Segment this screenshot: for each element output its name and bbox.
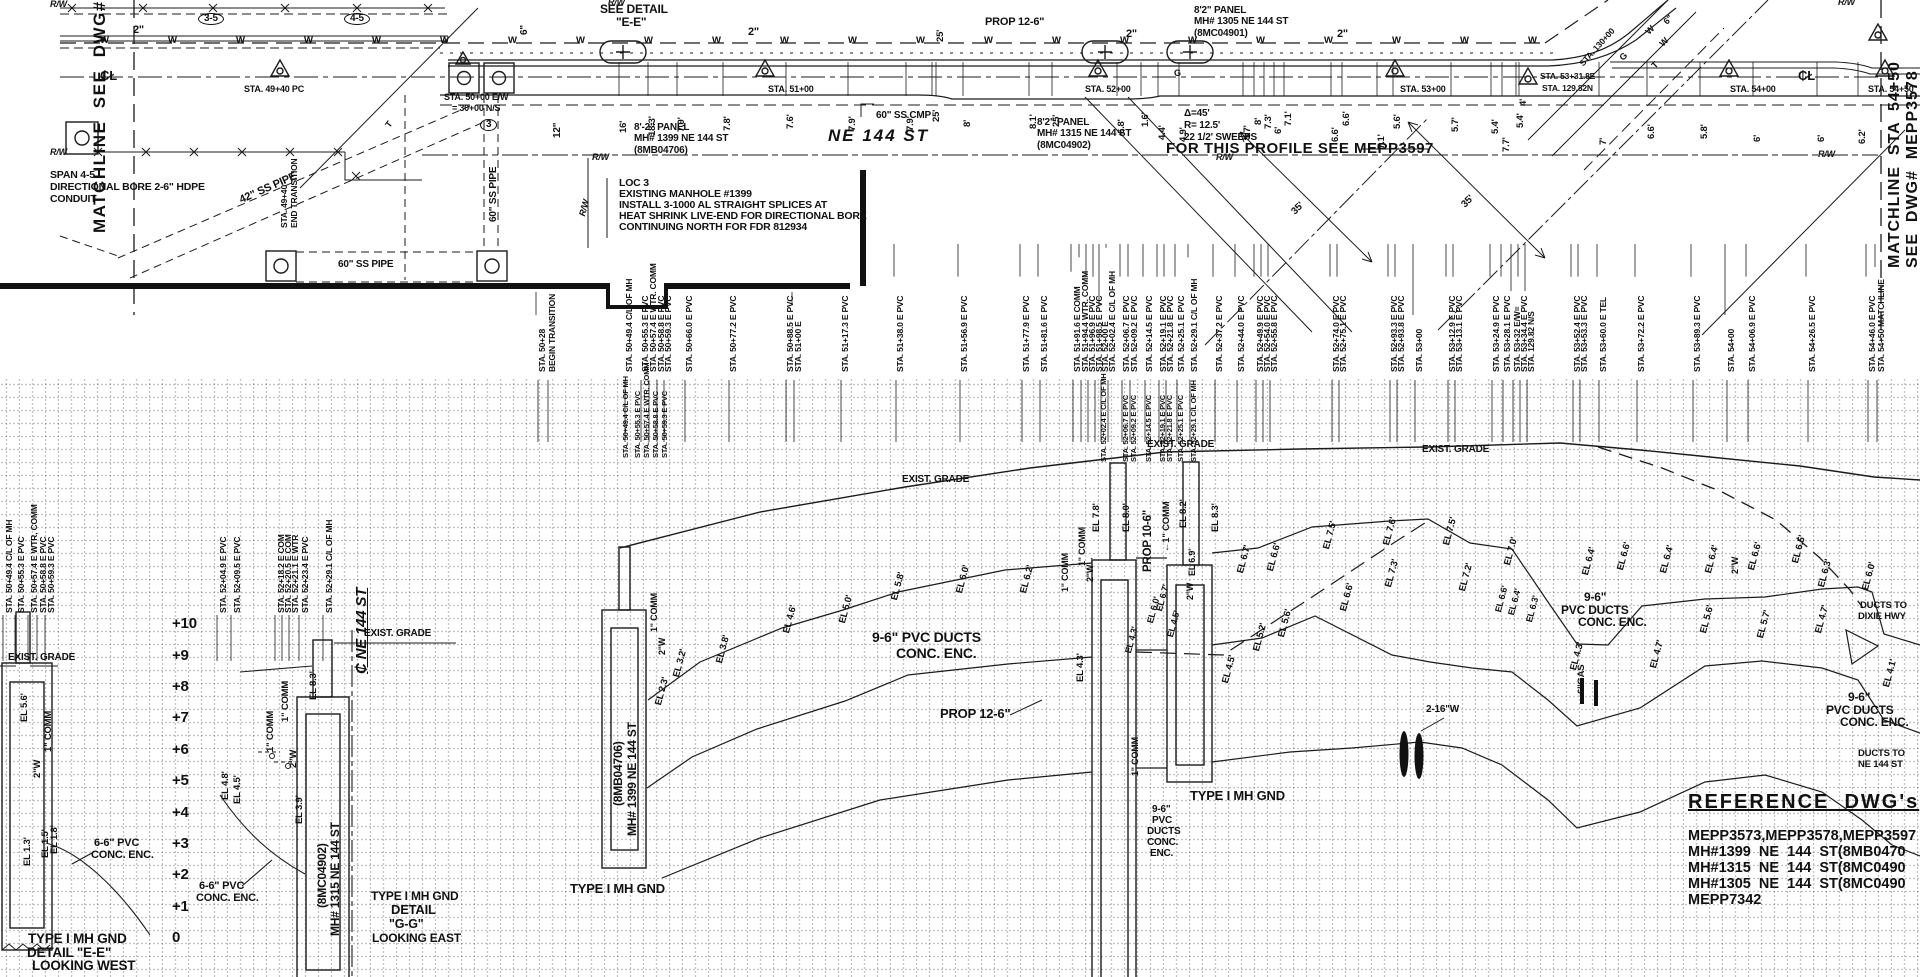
profile-station-callout: STA. 52+23.4 E PVC: [301, 537, 310, 613]
water-line-marker: W: [168, 36, 177, 46]
dimension-label: 16': [619, 121, 629, 133]
profile-label: EL 3.9': [295, 795, 305, 824]
dimension-label: 8': [963, 120, 973, 127]
water-line-marker: W: [576, 36, 585, 46]
elevation-scale-value: +5: [172, 773, 189, 788]
station-callout: STA. 51+17.3 E PVC: [841, 296, 850, 372]
station-callout: STA. 53+24.9 E PVC: [1492, 296, 1501, 372]
station-callout: STA. 54+06.9 E PVC: [1748, 296, 1757, 372]
profile-label: MH# 1315 NE 144 ST: [329, 822, 341, 936]
profile-label: EXIST. GRADE: [364, 629, 431, 639]
loc3-note-line: CONTINUING NORTH FOR FDR 812934: [619, 222, 807, 233]
plan-label: G: [1174, 69, 1181, 78]
station-callout: STA. 53+72.2 E PVC: [1637, 296, 1646, 372]
station-callout: STA. 52+25.1 E PVC: [1177, 296, 1186, 372]
profile-station-callout: STA. 52+09.5 E PVC: [233, 537, 242, 613]
plan-label: 2": [133, 25, 144, 36]
station-callout: STA. 53+13.1 E PVC: [1455, 296, 1464, 372]
profile-label: 2"W→: [1086, 556, 1095, 582]
span-note-line: SPAN 4-5: [50, 170, 95, 181]
profile-label: EXIST. GRADE: [1147, 440, 1214, 450]
elevation-scale-value: +2: [172, 867, 189, 882]
station-callout: STA. 53+60.0 E TEL: [1599, 297, 1608, 372]
dimension-label: 25': [1052, 115, 1062, 127]
span-note-line: CONDUIT: [50, 194, 96, 205]
profile-station-callout: STA. 52+21.8 E PVC: [1166, 395, 1174, 462]
water-line-marker: W: [1120, 36, 1129, 46]
profile-label: CONC. ENC.: [1840, 716, 1909, 728]
profile-label: 2"W: [1186, 583, 1195, 600]
station-callout: STA. 54+00: [1727, 329, 1736, 372]
plan-label: 2": [1337, 29, 1348, 40]
dimension-label: 5.7': [1451, 117, 1461, 132]
profile-label: CONC. ENC.: [196, 893, 259, 904]
station-callout: STA. 50+77.2 E PVC: [729, 296, 738, 372]
station-callout: STA. 52+37.2 E PVC: [1215, 296, 1224, 372]
dimension-label: 7.9': [677, 117, 687, 132]
plan-label: STA. 50+00 E/W: [444, 93, 508, 102]
water-line-marker: W: [1188, 36, 1197, 46]
station-callout: STA. 51+56.9 E PVC: [960, 296, 969, 372]
loc3-note-line: EXISTING MANHOLE #1399: [619, 189, 752, 200]
plan-label: STA. 49+40: [280, 185, 289, 228]
plan-label: R/W: [592, 153, 609, 162]
reference-dwgs-block: REFERENCE DWG's MEPP3573,MEPP3578,MEPP35…: [1688, 791, 1919, 908]
plan-label: R/W: [50, 0, 67, 9]
plan-label: 3: [480, 119, 497, 131]
station-callout: STA. 52+55.8 E PVC: [1270, 296, 1279, 372]
profile-label: 2"W: [289, 750, 299, 768]
elevation-scale-value: +9: [172, 648, 189, 663]
profile-label: LOOKING EAST: [372, 932, 461, 944]
profile-label: 1" COMM: [1061, 553, 1070, 592]
station-callout: STA. 50+28: [538, 329, 547, 372]
water-line-marker: W: [780, 36, 789, 46]
station-callout: STA. 52+14.5 E PVC: [1145, 296, 1154, 372]
profile-label: CONC. ENC.: [91, 850, 154, 861]
reference-dwg-line: MH#1315 NE 144 ST(8MC0490: [1688, 860, 1919, 876]
plan-label: 60" SS PIPE: [489, 167, 499, 222]
plan-label: = 30+00 N/S: [452, 104, 500, 113]
profile-label: LOOKING WEST: [32, 959, 135, 973]
dimension-label: 8.1': [1029, 114, 1039, 129]
reference-dwg-line: MH#1305 NE 144 ST(8MC0490: [1688, 876, 1919, 892]
water-line-marker: W: [712, 36, 721, 46]
profile-label: NE 144 ST: [1858, 760, 1903, 770]
dimension-label: 6': [1753, 135, 1763, 142]
plan-label: 4-5: [344, 13, 370, 25]
station-callout: STA. 53+89.3 E PVC: [1693, 296, 1702, 372]
reference-dwg-line: MH#1399 NE 144 ST(8MB0470: [1688, 844, 1919, 860]
dimension-label: 5.8': [1700, 124, 1710, 139]
dimension-label: 7': [1599, 138, 1609, 145]
profile-label: 9-6" PVC DUCTS: [872, 630, 981, 644]
station-callout: STA. 52+29.1 C/L OF MH: [1190, 279, 1199, 372]
dimension-label: 6.6': [1342, 111, 1352, 126]
profile-label: 6-6" PVC: [199, 881, 244, 892]
plan-label: 8'2" PANEL: [1194, 6, 1246, 16]
water-line-marker: W: [236, 36, 245, 46]
profile-label: MH# 1399 NE 144 ST: [626, 722, 638, 836]
plan-label: STA. 53+00: [1400, 85, 1446, 94]
profile-station-callout: STA. 50+57.4 E WTR. COMM: [643, 363, 651, 458]
water-line-marker: W: [1256, 36, 1265, 46]
station-callout: STA. 52+75.1 E PVC: [1339, 296, 1348, 372]
profile-label: TYPE I MH GND: [1190, 789, 1285, 802]
station-callout: STA. 50+49.4 C/L OF MH: [625, 279, 634, 372]
station-callout: STA. 54+50 MATCHLINE: [1877, 279, 1886, 372]
dimension-label: 4.9': [1179, 127, 1189, 142]
profile-label: 1" COMM: [44, 711, 54, 752]
profile-label: 2-16"W: [1426, 705, 1459, 715]
loc3-note-line: INSTALL 3-1000 AL STRAIGHT SPLICES AT: [619, 200, 827, 211]
profile-label: DUCTS TO: [1858, 749, 1905, 759]
plan-label: ₵Ł: [100, 69, 117, 82]
profile-label: PROP 10-6": [1143, 510, 1155, 572]
profile-label: EL 4.8': [221, 771, 231, 800]
profile-label: EXIST. GRADE: [902, 475, 969, 485]
profile-label: PVC DUCTS: [1561, 604, 1629, 616]
plan-label: SEE DETAIL: [600, 3, 668, 15]
profile-station-callout: STA. 52+02.4 E C/L OF MH: [1100, 374, 1108, 463]
station-callout: STA. 54+26.5 E PVC: [1808, 296, 1817, 372]
profile-label: 9-6": [1848, 691, 1870, 703]
profile-station-callout: STA. 50+49.4 C/L OF MH: [622, 376, 630, 458]
profile-label: 2"W: [658, 638, 667, 655]
plan-label: R/W: [1838, 0, 1855, 7]
dimension-label: 1.6': [1141, 112, 1151, 127]
plan-label: 3-5: [198, 13, 224, 25]
plan-label: (8MB04706): [634, 146, 688, 156]
profile-label: CONC.: [1147, 838, 1178, 848]
elevation-scale-value: +10: [172, 616, 197, 631]
profile-label: 1" COMM: [266, 711, 276, 752]
elevation-scale-value: +8: [172, 679, 189, 694]
water-line-marker: W: [440, 36, 449, 46]
water-line-marker: W: [1528, 36, 1537, 46]
station-callout: STA. 52+21.8 E PVC: [1166, 296, 1175, 372]
profile-label: EXIST. GRADE: [8, 653, 75, 663]
reference-dwg-line: MEPP3573,MEPP3578,MEPP3597: [1688, 828, 1919, 844]
dimension-label: 7.7': [1502, 137, 1512, 152]
profile-station-callout: STA. 52+29.1 C/L OF MH: [325, 520, 334, 613]
elevation-scale-value: +7: [172, 710, 189, 725]
plan-label: PROP 12-6": [985, 17, 1044, 28]
plan-label: STA. 51+00: [768, 85, 814, 94]
profile-label: 6-6" PVC: [94, 838, 139, 849]
water-line-marker: W: [508, 36, 517, 46]
engineering-drawing-sheet: MATCHLINE SEE DWG# MEPP73 MATCHLINE STA …: [0, 0, 1920, 977]
profile-label: CONC. ENC.: [1578, 616, 1647, 628]
station-callout: STA. 52+09.2 E PVC: [1130, 296, 1139, 372]
profile-label: 1" COMM: [1131, 737, 1140, 776]
elevation-scale-value: +4: [172, 805, 189, 820]
plan-label: STA. 53+31.8E: [1540, 72, 1595, 81]
profile-station-callout: STA. 50+55.3 E PVC: [17, 537, 26, 613]
profile-label: ENC.: [1150, 849, 1173, 859]
station-callout: STA. 53+00: [1415, 329, 1424, 372]
dimension-label: 5.4': [1516, 113, 1526, 128]
profile-label: EL 7.8': [1092, 503, 1102, 532]
station-callout: STA. 51+00 E: [794, 321, 803, 372]
water-line-marker: W: [1392, 36, 1401, 46]
station-callout: STA. 53+28.1 E PVC: [1503, 296, 1512, 372]
plan-label: 60" SS CMP: [876, 111, 931, 121]
profile-label: PVC: [1152, 816, 1172, 826]
profile-label: EL 8.3': [309, 671, 319, 700]
dimension-label: 4': [1519, 99, 1529, 106]
profile-station-callout: STA. 50+49.4 C/L OF MH: [5, 520, 14, 613]
water-line-marker: W: [304, 36, 313, 46]
profile-station-callout: STA. 52+25.1 E PVC: [1177, 395, 1185, 462]
plan-label: ₵Ł: [1798, 69, 1815, 82]
plan-label: "E-E": [616, 16, 646, 28]
dimension-label: 7.6': [786, 114, 796, 129]
plan-label: R= 12.5': [1184, 121, 1220, 131]
profile-station-callout: STA. 50+59.3 E PVC: [47, 537, 56, 613]
span-note-line: DIRECTIONAL BORE 2-6" HDPE: [50, 182, 205, 193]
profile-station-callout: STA. 52+09.2 E PVC: [1130, 395, 1138, 462]
station-callout: STA. 129.82 N/S: [1527, 311, 1536, 372]
profile-label: EL 1.3': [23, 837, 33, 866]
plan-label: R/W: [1818, 150, 1835, 159]
station-callout: STA. 52+02.4 E C/L OF MH: [1108, 271, 1117, 372]
plan-label: STA. 54+00: [1730, 85, 1776, 94]
station-callout: STA. 50+66.0 E PVC: [685, 296, 694, 372]
reference-dwg-line: MEPP7342: [1688, 892, 1919, 908]
profile-station-callout: STA. 50+55.3 E PVC: [634, 391, 642, 458]
profile-label: 9-6": [1584, 591, 1606, 603]
profile-label: 1" COMM: [650, 593, 659, 632]
plan-label: 6": [520, 25, 530, 35]
station-callout: STA. 50+59.3 E PVC: [664, 296, 673, 372]
profile-label: TYPE I MH GND: [28, 932, 127, 946]
matchline-right-label-line2: SEE DWG# MEPP3578: [1904, 70, 1920, 268]
dimension-label: 25': [936, 30, 946, 42]
dimension-label: 6.6': [1647, 124, 1657, 139]
profile-label: (8MC04902): [316, 843, 328, 908]
profile-label: EL 5.6': [20, 693, 30, 722]
plan-label: 12": [553, 123, 563, 138]
plan-label: Δ=45': [1184, 109, 1210, 119]
profile-label: 6"GAS: [1577, 665, 1587, 694]
station-callout: STA. 52+93.8 E PVC: [1397, 296, 1406, 372]
water-line-marker: W: [916, 36, 925, 46]
dimension-label: 7.1': [1377, 134, 1387, 149]
dimension-label: 6.8': [1117, 119, 1127, 134]
profile-station-callout: STA. 52+21.1 E WTR: [291, 535, 300, 613]
profile-label: (8MB04706): [612, 741, 624, 806]
water-line-marker: W: [100, 36, 109, 46]
plan-label: 2": [748, 27, 759, 38]
water-line-marker: W: [1324, 36, 1333, 46]
dimension-label: 7.1': [1284, 111, 1294, 126]
plan-label: MH# 1305 NE 144 ST: [1194, 17, 1288, 27]
profile-label: EL 8.3': [1211, 503, 1221, 532]
plan-lines: [60, 0, 1920, 345]
water-line-marker: W: [848, 36, 857, 46]
linework-svg: [0, 0, 1920, 977]
dimension-label: 18.3': [648, 116, 658, 136]
elevation-scale-value: +1: [172, 899, 189, 914]
profile-label: EL 4.5': [233, 775, 243, 804]
loc3-note-line: HEAT SHRINK LIVE-END FOR DIRECTIONAL BOR…: [619, 211, 867, 222]
profile-label: "G-G": [389, 918, 423, 931]
water-line-marker: W: [372, 36, 381, 46]
water-line-marker: W: [984, 36, 993, 46]
dimension-label: 6.2': [1858, 129, 1868, 144]
dimension-label: 6': [1817, 135, 1827, 142]
reference-dwgs-title: REFERENCE DWG's: [1688, 791, 1919, 814]
profile-label: PROP 12-6": [940, 707, 1010, 720]
dimension-label: 7.9': [848, 116, 858, 131]
plan-label: STA. 54+50: [1868, 85, 1914, 94]
profile-label: CONC. ENC.: [896, 646, 976, 660]
plan-label: (8MC04902): [1037, 141, 1091, 151]
profile-station-callout: STA. 52+14.5 E PVC: [1145, 395, 1153, 462]
profile-label: EL 8.0': [1122, 503, 1132, 532]
plan-label: STA. 52+00: [1085, 85, 1131, 94]
dimension-label: 6.6': [1331, 127, 1341, 142]
plan-label: 8'2" PANEL: [1037, 118, 1089, 128]
profile-label: 9-6": [1152, 805, 1170, 815]
plan-label: R/W: [50, 148, 67, 157]
profile-label: ₵ NE 144 ST: [354, 588, 369, 674]
dimension-label: 5.4': [1491, 119, 1501, 134]
profile-label: EL 1.8': [50, 825, 60, 854]
profile-label: PVC DUCTS: [1826, 704, 1894, 716]
water-line-marker: W: [644, 36, 653, 46]
loc3-note-line: LOC 3: [619, 178, 649, 189]
elevation-scale-value: +6: [172, 742, 189, 757]
plan-label: STA. 49+40 PC: [244, 85, 304, 94]
plan-label: (8MC04901): [1194, 29, 1248, 39]
dimension-label: 7.8': [723, 116, 733, 131]
elevation-scale-value: 0: [172, 930, 180, 945]
water-line-marker: W: [1460, 36, 1469, 46]
profile-label: ←1" COMM: [1162, 502, 1172, 552]
profile-label: EL 6.9': [1188, 549, 1197, 576]
station-callout: BEGIN TRANSITION: [548, 294, 557, 372]
dimension-label: 25': [932, 110, 942, 122]
plan-label: 60" SS PIPE: [338, 260, 393, 270]
profile-station-callout: STA. 50+58.8 E PVC: [652, 391, 660, 458]
profile-label: TYPE I MH GND: [570, 882, 665, 895]
profile-station-callout: STA. 52+04.9 E PVC: [219, 537, 228, 613]
profile-label: 1" COMM: [281, 681, 291, 722]
station-callout: STA. 52+44.0 E PVC: [1237, 296, 1246, 372]
profile-label: 2"W: [1731, 557, 1740, 574]
plan-label: END TRANSITION: [290, 159, 299, 228]
profile-label: DUCTS: [1147, 827, 1180, 837]
profile-label: EL 8.2': [1179, 499, 1189, 528]
profile-label: DUCTS TO: [1860, 601, 1907, 611]
profile-label: EL 4.3': [1076, 653, 1086, 682]
dimension-label: 5.7': [1243, 125, 1253, 140]
plan-label: R/W: [1216, 153, 1233, 162]
dimension-label: 5.6': [1393, 114, 1403, 129]
profile-label: 2"W: [33, 760, 43, 778]
plan-label: STA. 129.82N: [1542, 84, 1593, 93]
station-callout: STA. 51+77.9 E PVC: [1022, 296, 1031, 372]
profile-station-callout: STA. 50+59.3 E PVC: [661, 391, 669, 458]
water-line-marker: W: [1052, 36, 1061, 46]
profile-label: TYPE I MH GND: [371, 890, 458, 902]
elevation-scale-value: +3: [172, 836, 189, 851]
profile-label: DIXIE HWY: [1858, 612, 1906, 622]
station-callout: STA. 51+81.6 E PVC: [1040, 296, 1049, 372]
station-callout: STA. 53+53.3 E PVC: [1580, 296, 1589, 372]
station-callout: STA. 51+38.0 E PVC: [896, 296, 905, 372]
profile-label: DETAIL: [391, 903, 436, 916]
dimension-label: 4.4': [1158, 125, 1168, 140]
dimension-label: 7.9': [906, 116, 916, 131]
profile-label: EXIST. GRADE: [1422, 445, 1489, 455]
dimension-label: 6': [1274, 127, 1284, 134]
